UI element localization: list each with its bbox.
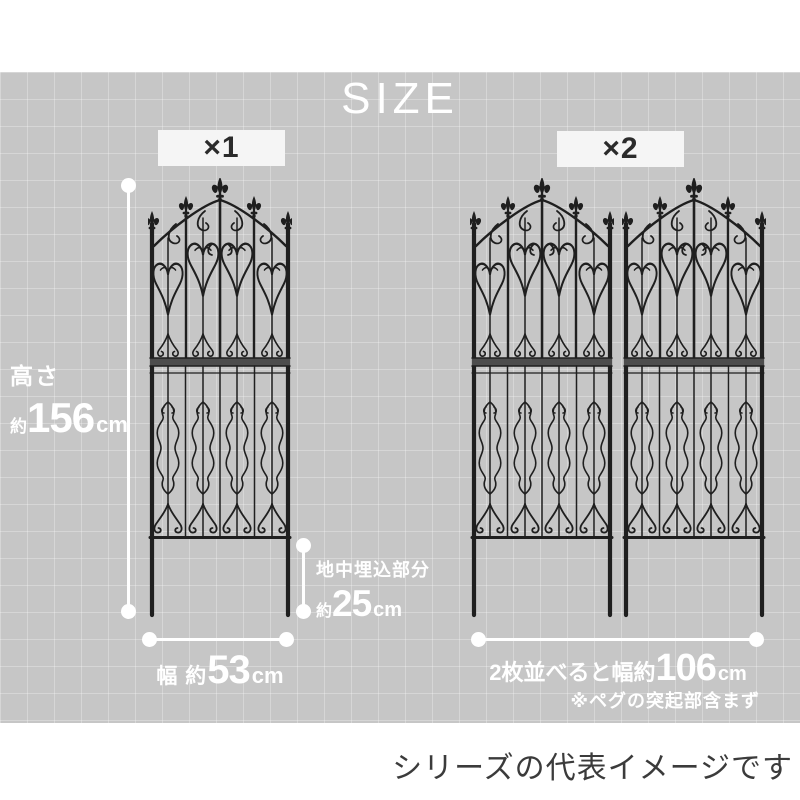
width-double-dim-dot-right bbox=[749, 632, 764, 647]
count-badge-single: ×1 bbox=[158, 130, 285, 166]
count-badge-single-label: ×1 bbox=[203, 131, 239, 165]
count-badge-double: ×2 bbox=[557, 131, 684, 167]
height-label: 高さ 約 156 cm bbox=[10, 357, 128, 439]
footer-caption: シリーズの代表イメージです bbox=[392, 743, 793, 787]
width-single-dim-line bbox=[154, 638, 282, 641]
height-label-title: 高さ bbox=[10, 357, 128, 391]
buried-label-unit: cm bbox=[373, 599, 402, 622]
width-single-dim-dot-right bbox=[279, 632, 294, 647]
buried-dim-dot-bottom bbox=[296, 604, 311, 619]
height-label-value: 156 bbox=[27, 397, 94, 439]
width-single-prefix: 幅 約 bbox=[156, 660, 207, 690]
page-title: SIZE bbox=[0, 74, 800, 124]
peg-note: ※ペグの突起部含まず bbox=[571, 687, 761, 713]
width-double-dim-line bbox=[483, 638, 751, 641]
fence-illustration-double-right bbox=[622, 178, 766, 618]
height-label-prefix: 約 bbox=[10, 412, 27, 437]
width-single-label: 幅 約 53 cm bbox=[128, 650, 312, 690]
width-double-prefix: 2枚並べると幅約 bbox=[489, 655, 655, 687]
height-label-unit: cm bbox=[96, 412, 128, 438]
buried-dim-line bbox=[302, 549, 305, 607]
fence-illustration-single bbox=[148, 178, 292, 618]
buried-label-title: 地中埋込部分 bbox=[316, 556, 430, 582]
fence-illustration-double-left bbox=[470, 178, 614, 618]
buried-label: 地中埋込部分 約 25 cm bbox=[316, 556, 430, 622]
buried-label-prefix: 約 bbox=[316, 597, 332, 621]
width-double-value: 106 bbox=[655, 649, 715, 687]
width-single-value: 53 bbox=[207, 650, 250, 690]
count-badge-double-label: ×2 bbox=[602, 132, 638, 166]
buried-label-value: 25 bbox=[332, 585, 371, 622]
width-double-unit: cm bbox=[718, 663, 747, 686]
height-dim-dot-bottom bbox=[121, 604, 136, 619]
width-double-label: 2枚並べると幅約 106 cm bbox=[430, 649, 800, 687]
width-single-unit: cm bbox=[252, 663, 284, 689]
